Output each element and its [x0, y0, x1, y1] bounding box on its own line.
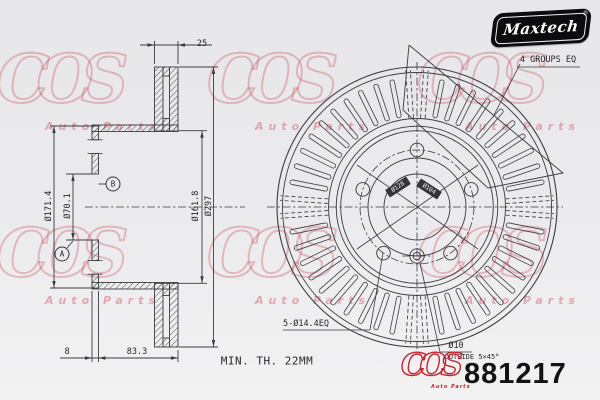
drawing-lines	[50, 41, 580, 362]
dim-bore-diameter: Ø70.1	[63, 193, 73, 219]
part-number: 881217	[464, 358, 567, 391]
datum-label-a: A	[55, 247, 70, 262]
dim-rotor-width: 25	[197, 39, 207, 49]
dim-outer-diameter: Ø297	[204, 196, 214, 216]
note-vane-groups: 4 GROUPS EQ	[520, 55, 576, 65]
note-bolt-holes: 5-Ø14.4EQ	[283, 319, 329, 329]
maxtech-logo: Maxtech ®	[490, 8, 592, 47]
catalog-drawing-page: COSAuto PartsCOSAuto PartsCOSAuto PartsC…	[0, 0, 600, 400]
dim-friction-inner-diameter: Ø161.8	[191, 191, 201, 222]
dim-flange-thickness: 8	[64, 347, 69, 357]
registered-mark-icon: ®	[582, 9, 589, 16]
maxtech-logo-border: Maxtech	[494, 12, 587, 44]
technical-drawing	[0, 0, 600, 400]
cos-footer-logo: COS Auto Parts	[401, 355, 471, 395]
note-min-thickness: MIN. TH. 22MM	[221, 355, 314, 368]
dim-hat-diameter: Ø171.4	[44, 191, 54, 222]
maxtech-logo-text: Maxtech	[502, 17, 579, 39]
cos-footer-script: COS	[401, 347, 457, 383]
dim-hat-depth: 83.3	[127, 347, 147, 357]
datum-label-b: B	[106, 177, 121, 192]
